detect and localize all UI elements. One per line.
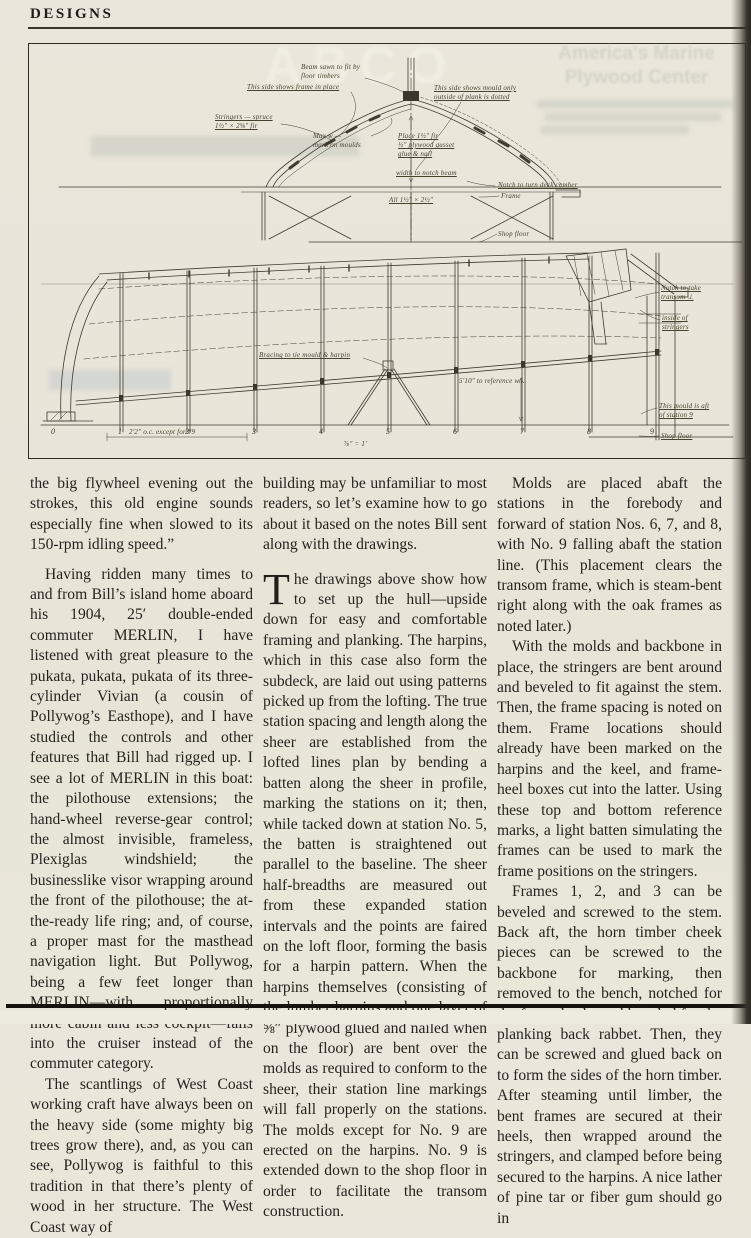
annotation-reference: 5′10″ to reference w.l. bbox=[459, 377, 525, 386]
annotation-shop-floor-upper: Shop floor bbox=[498, 230, 529, 239]
page-foot-margin bbox=[0, 1010, 751, 1024]
paragraph: Frames 1, 2, and 3 can be beveled and sc… bbox=[497, 882, 722, 1229]
annotation-scale: ⅞″ = 1′ bbox=[344, 440, 367, 449]
article-column-1: the big flywheel evening out the strokes… bbox=[30, 474, 253, 1008]
station-label: 7 bbox=[520, 427, 524, 436]
annotation-shop-floor-lower: Shop floor bbox=[661, 432, 692, 441]
paragraph: Molds are placed abaft the stations in t… bbox=[497, 474, 722, 637]
paragraph: The scantlings of West Coast working cra… bbox=[30, 1075, 253, 1238]
annotation-deck-camber: Notch to turn deck camber bbox=[498, 181, 578, 190]
station-label: 6 bbox=[453, 427, 457, 436]
annotation-all-dim: All 1½″ × 2½″ bbox=[389, 196, 433, 205]
station-label: 5 bbox=[386, 427, 390, 436]
annotation-notch-transom: Notch to take transom ⊥ bbox=[661, 284, 701, 302]
paragraph: the big flywheel evening out the strokes… bbox=[30, 474, 253, 556]
annotation-gusset: Place 1½″ fir ½″ plywood gusset glue & n… bbox=[398, 132, 454, 159]
station-label: 8 bbox=[587, 427, 591, 436]
station-label: 3 bbox=[252, 427, 256, 436]
annotation-bracing: Bracing to tie mould & harpin bbox=[259, 351, 350, 360]
boat-drawing-linework bbox=[29, 44, 745, 458]
paragraph: building may be unfamiliar to most reade… bbox=[263, 474, 487, 556]
annotation-mould-aft: This mould is aft of station 9 bbox=[659, 402, 709, 420]
magazine-page: DESIGNS ABCO America's Marine Plywood Ce… bbox=[0, 0, 751, 1024]
annotation-beam-note: Beam sawn to fit by floor timbers bbox=[301, 63, 360, 81]
article-column-2: building may be unfamiliar to most reade… bbox=[263, 474, 487, 1008]
paragraph: With the molds and backbone in place, th… bbox=[497, 637, 722, 882]
station-label: 4 bbox=[319, 427, 323, 436]
station-label: 0 bbox=[51, 427, 55, 436]
construction-drawing-panel: ABCO America's Marine Plywood Center bbox=[28, 43, 746, 459]
annotation-notch-beam: width to notch beam bbox=[396, 169, 457, 178]
annotation-inside-stringers: inside of stringers bbox=[662, 314, 689, 332]
annotation-max-width: Max w — mark on moulds bbox=[313, 132, 361, 150]
paragraph-text: he drawings above show how to set up the… bbox=[263, 571, 487, 1221]
station-label: 9 bbox=[650, 427, 654, 436]
page-title: DESIGNS bbox=[30, 6, 113, 23]
article-column-3: Molds are placed abaft the stations in t… bbox=[497, 474, 722, 1008]
page-edge-shadow bbox=[731, 0, 751, 1024]
annotation-frame: Frame bbox=[501, 192, 521, 201]
drop-cap: T bbox=[263, 570, 294, 607]
annotation-mould-side: This side shows mould only outside of pl… bbox=[434, 84, 516, 102]
paragraph-with-dropcap: The drawings above show how to set up th… bbox=[263, 570, 487, 1223]
paragraph: Having ridden many times to and from Bil… bbox=[30, 565, 253, 1075]
annotation-stringers: Stringers — spruce 1½″ × 2⅝″ fir bbox=[215, 113, 273, 131]
bottom-rule bbox=[6, 1004, 751, 1008]
station-label: 2 bbox=[185, 427, 189, 436]
header-rule bbox=[28, 27, 751, 29]
station-label: 1 bbox=[118, 427, 122, 436]
annotation-frame-side: This side shows frame in place bbox=[247, 83, 339, 92]
